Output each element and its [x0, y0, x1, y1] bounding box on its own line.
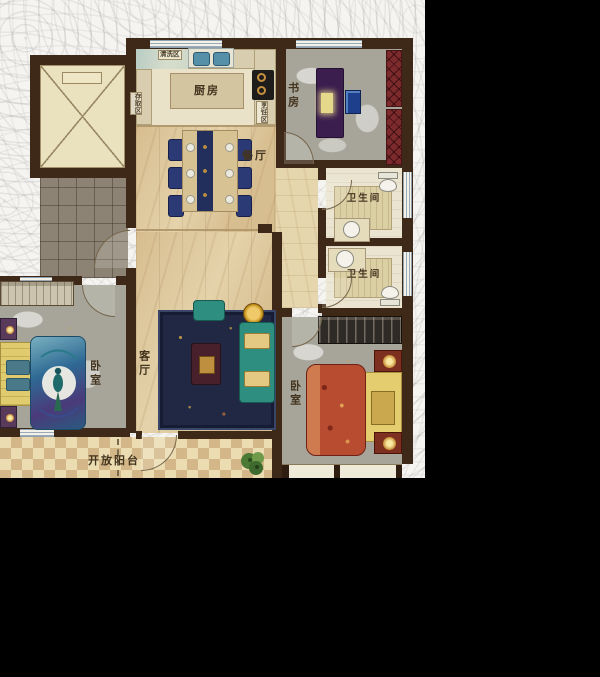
balcony-plant	[238, 448, 268, 478]
study-bookshelf-lower	[386, 109, 402, 165]
wall-left-lower	[126, 268, 136, 433]
bay-window-post	[396, 465, 402, 478]
wall-stub-divider	[258, 224, 272, 233]
living-coffee-table	[191, 343, 221, 385]
wall-bedroom-right-top-a	[282, 308, 292, 317]
bedroom-right-bed	[306, 364, 366, 456]
stove-burner	[257, 73, 266, 82]
bedroom-left-bed	[30, 336, 86, 430]
desk-lamp-glow	[321, 93, 333, 113]
study-desk	[316, 68, 344, 138]
bedroom-right-wardrobe	[318, 316, 402, 344]
place-setting	[186, 143, 195, 152]
nightstand-lamp	[6, 414, 14, 422]
kitchen-sink	[188, 48, 234, 68]
wall-elevator-top	[30, 55, 135, 65]
room-label-dining: 餐厅	[242, 150, 268, 163]
place-setting	[225, 143, 234, 152]
place-setting	[186, 169, 195, 178]
room-label-study: 书房	[286, 82, 299, 110]
kitchen-zone-storage: 存取区	[130, 92, 142, 115]
room-label-bedroom-left: 卧室	[88, 360, 101, 388]
screenshot-stage: 厨房 存取区 清洗区 烹饪区 书房	[0, 0, 600, 677]
room-label-living: 客厅	[137, 350, 150, 378]
bay-window-post	[282, 465, 289, 478]
living-armchair	[193, 300, 225, 321]
sofa-pillow	[244, 333, 270, 349]
sink-basin	[213, 52, 230, 66]
room-label-bathroom-top: 卫生间	[336, 194, 392, 205]
kitchen-stove	[252, 70, 274, 100]
coffee-table-emblem	[199, 356, 215, 374]
place-setting	[225, 195, 234, 204]
floor-divider-kitchen-dining	[136, 125, 276, 127]
wall-elevator-left	[30, 55, 40, 178]
room-label-balcony: 开放阳台	[82, 455, 146, 468]
nightstand-lamp	[383, 355, 396, 368]
dining-chair	[236, 195, 252, 217]
bay-window	[282, 464, 402, 478]
dining-table-runner	[197, 131, 213, 211]
kitchen-island: 厨房	[170, 73, 244, 109]
floor-plan: 厨房 存取区 清洗区 烹饪区 书房	[0, 0, 425, 478]
place-setting	[186, 195, 195, 204]
hallway-floor	[276, 161, 318, 308]
bed-frame-panel	[371, 391, 395, 425]
toilet	[381, 286, 399, 299]
toilet	[379, 179, 397, 192]
study-bookshelf-upper	[386, 50, 402, 107]
wall-bath1-left-a	[318, 168, 326, 180]
nightstand	[0, 406, 17, 428]
room-label-bedroom-right: 卧室	[288, 380, 301, 408]
nightstand	[374, 350, 402, 372]
sofa-pillow	[244, 371, 270, 387]
bed-pillow	[6, 360, 30, 375]
wall-bath2-left-a	[318, 246, 326, 278]
elevator-door-panel	[62, 72, 102, 84]
kitchen-zone-cooking: 烹饪区	[256, 101, 268, 124]
floor-divider-dining-living	[136, 229, 272, 231]
toilet-tank	[378, 172, 398, 179]
living-sofa	[239, 322, 275, 403]
room-label-kitchen: 厨房	[194, 85, 220, 98]
wall-elevator-bottom	[30, 168, 135, 178]
place-setting	[225, 169, 234, 178]
peacock-quilt-art	[31, 337, 87, 431]
dining-table	[182, 130, 238, 212]
plant-icon	[238, 448, 268, 478]
room-label-bathroom-bottom: 卫生间	[336, 270, 392, 281]
bed-pillow	[6, 378, 30, 391]
wall-right	[402, 38, 413, 464]
nightstand-lamp	[383, 437, 396, 450]
study-monitor	[345, 90, 361, 114]
living-side-table	[243, 303, 264, 324]
window-bathroom-bottom	[403, 252, 412, 296]
sink-basin	[193, 52, 210, 66]
kitchen-zone-washing: 清洗区	[158, 50, 182, 60]
window-bathroom-top	[403, 172, 412, 218]
bedroom-left-wardrobe	[0, 281, 74, 306]
bathroom-sink	[336, 250, 354, 268]
toilet-tank	[380, 299, 400, 306]
window-study-top	[296, 40, 362, 48]
elevator-shaft	[40, 65, 125, 168]
bathroom-sink	[343, 221, 360, 238]
stove-burner	[257, 86, 266, 95]
wall-bedroom-left-top-b	[116, 276, 132, 285]
nightstand	[0, 318, 17, 340]
nightstand	[374, 432, 402, 454]
dining-chair	[236, 167, 252, 189]
window-kitchen-top	[150, 40, 222, 48]
bay-window-post	[334, 465, 340, 478]
wall-elevator-right	[125, 55, 135, 178]
nightstand-lamp	[6, 326, 14, 334]
wall-balcony-top-b	[178, 431, 282, 439]
